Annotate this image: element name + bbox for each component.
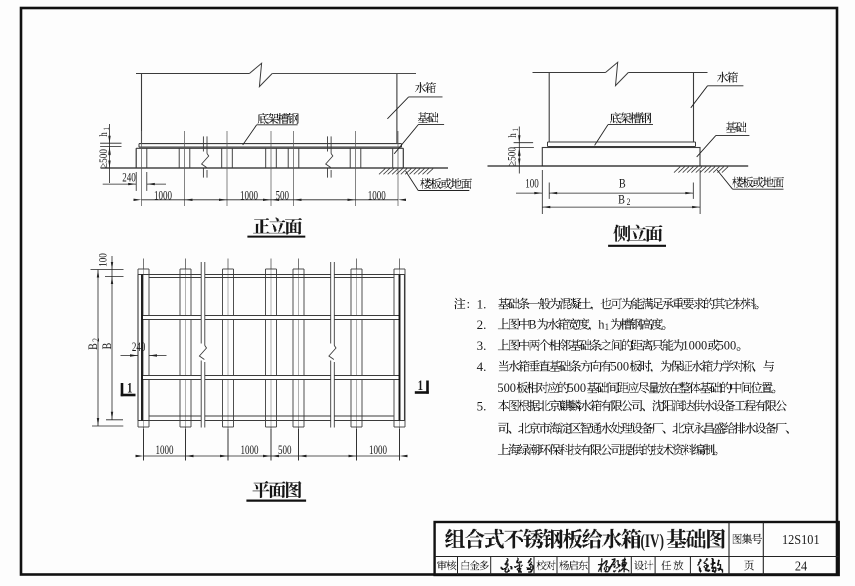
svg-text:4.: 4. xyxy=(477,359,487,374)
svg-text:h: h xyxy=(98,132,110,137)
svg-text:3.: 3. xyxy=(477,338,487,353)
svg-text:≥500: ≥500 xyxy=(507,147,519,166)
svg-text:1: 1 xyxy=(605,322,610,332)
svg-text:240: 240 xyxy=(122,171,136,185)
svg-text:500: 500 xyxy=(718,338,737,352)
svg-text:2.: 2. xyxy=(477,317,487,332)
svg-text:24: 24 xyxy=(795,558,808,574)
svg-text:B: B xyxy=(87,343,100,350)
svg-text:1000: 1000 xyxy=(154,189,172,203)
svg-text:1.: 1. xyxy=(477,296,487,311)
svg-text:1: 1 xyxy=(418,378,423,394)
svg-text:1000: 1000 xyxy=(368,189,386,203)
svg-text:5.: 5. xyxy=(477,398,487,413)
svg-text:1000: 1000 xyxy=(240,444,258,458)
svg-text:12S101: 12S101 xyxy=(782,531,820,547)
svg-text:1000: 1000 xyxy=(682,338,707,352)
svg-text:2: 2 xyxy=(90,338,101,342)
svg-text:500: 500 xyxy=(278,444,292,458)
svg-text:(IV): (IV) xyxy=(641,531,665,552)
svg-text:2: 2 xyxy=(627,196,631,207)
svg-text:240: 240 xyxy=(132,341,146,355)
svg-text:1000: 1000 xyxy=(369,444,387,458)
svg-text:500: 500 xyxy=(567,381,586,395)
svg-text:B: B xyxy=(528,317,536,331)
svg-text:1000: 1000 xyxy=(240,189,258,203)
svg-text:100: 100 xyxy=(525,177,539,191)
svg-text:500: 500 xyxy=(275,189,289,203)
svg-text:1000: 1000 xyxy=(155,444,173,458)
svg-text:1: 1 xyxy=(101,127,111,130)
svg-text:B: B xyxy=(619,177,626,191)
svg-text:≥500: ≥500 xyxy=(98,149,110,168)
svg-text:500: 500 xyxy=(497,381,516,395)
svg-text:500: 500 xyxy=(610,359,629,373)
svg-text:h: h xyxy=(507,133,519,138)
svg-text:B: B xyxy=(618,193,625,207)
svg-text:100: 100 xyxy=(98,253,110,267)
svg-text:1: 1 xyxy=(510,128,520,131)
svg-text:B: B xyxy=(101,343,114,350)
svg-text::: : xyxy=(466,296,470,311)
svg-text:1: 1 xyxy=(127,380,132,396)
